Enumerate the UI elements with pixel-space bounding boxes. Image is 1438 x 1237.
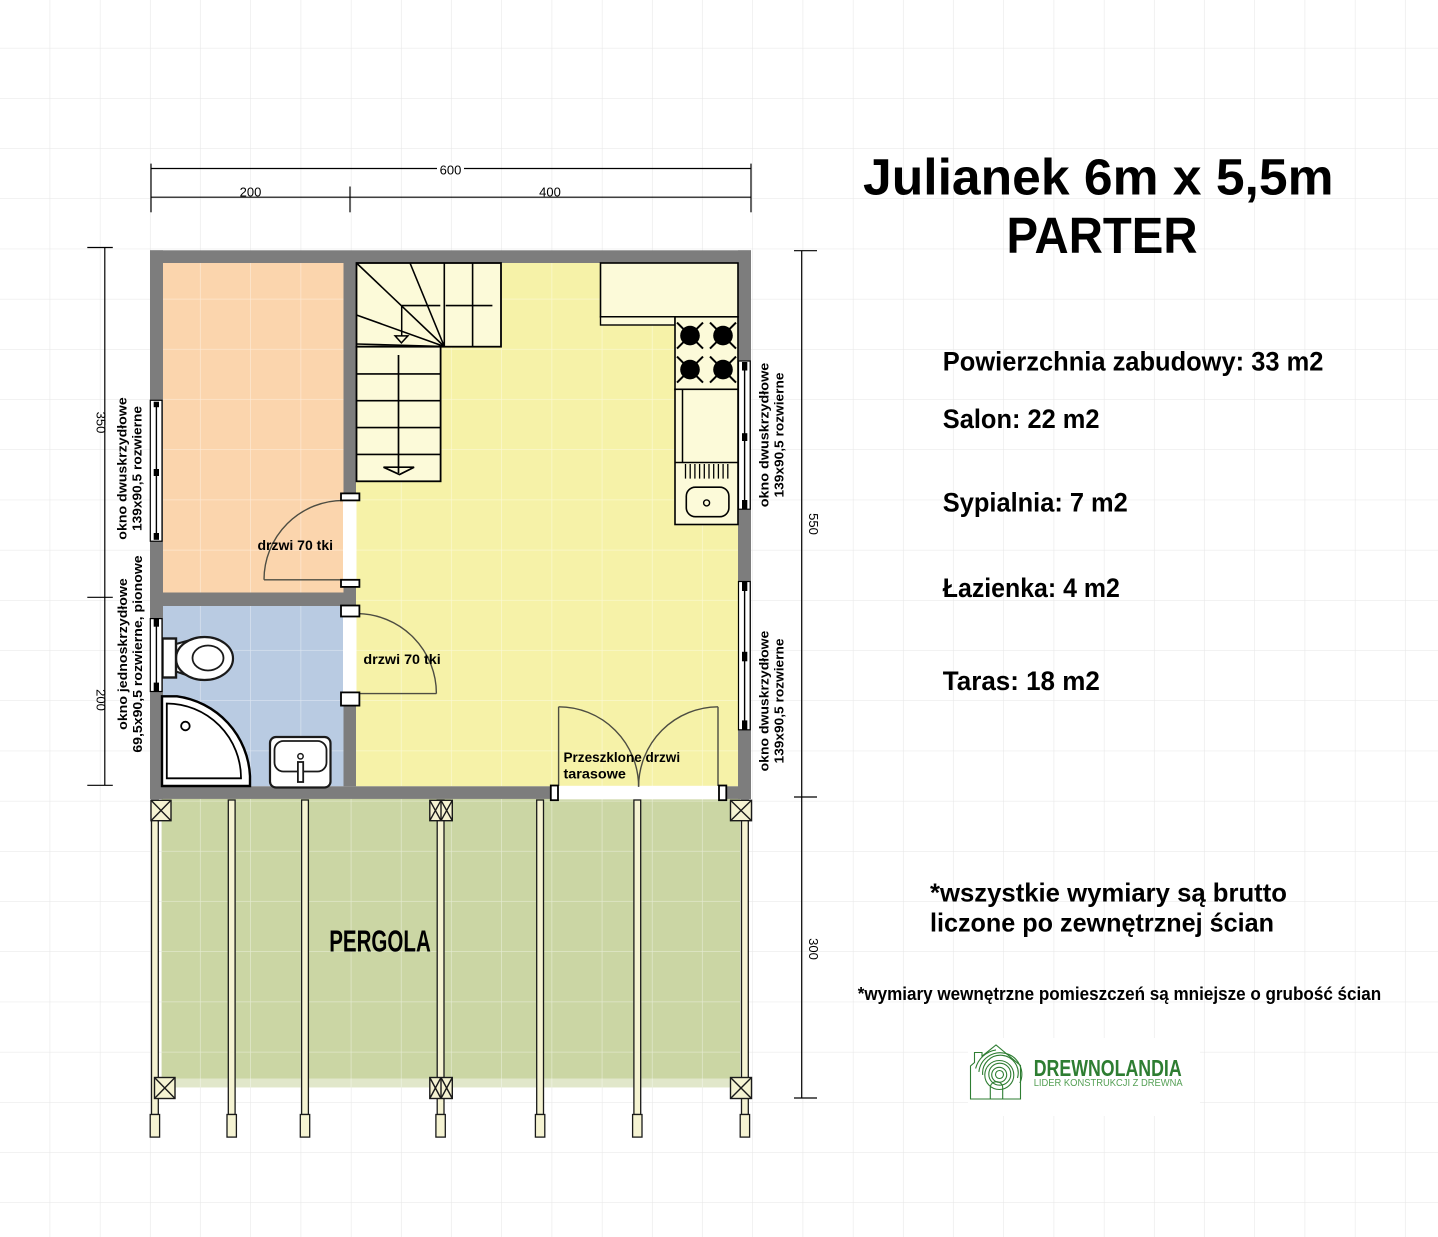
svg-text:300: 300 <box>806 938 821 960</box>
svg-text:*wszystkie wymiary są brutto: *wszystkie wymiary są brutto <box>930 878 1287 908</box>
svg-text:Łazienka: 4 m2: Łazienka: 4 m2 <box>943 573 1120 603</box>
svg-text:okno dwuskrzydłowe: okno dwuskrzydłowe <box>757 631 772 772</box>
svg-text:Salon: 22 m2: Salon: 22 m2 <box>943 404 1100 434</box>
svg-text:liczone po zewnętrznej ścian: liczone po zewnętrznej ścian <box>930 908 1274 938</box>
svg-text:LIDER KONSTRUKCJI Z DREWNA: LIDER KONSTRUKCJI Z DREWNA <box>1034 1077 1183 1089</box>
svg-text:350: 350 <box>94 412 109 434</box>
svg-text:Przeszklone drzwi: Przeszklone drzwi <box>564 750 681 765</box>
svg-text:Sypialnia: 7 m2: Sypialnia: 7 m2 <box>943 488 1128 518</box>
svg-text:okno dwuskrzydłowe: okno dwuskrzydłowe <box>115 397 130 539</box>
svg-text:Julianek 6m x 5,5m: Julianek 6m x 5,5m <box>863 149 1334 206</box>
svg-text:drzwi 70 tki: drzwi 70 tki <box>363 652 440 667</box>
svg-text:Powierzchnia zabudowy: 33 m2: Powierzchnia zabudowy: 33 m2 <box>943 347 1324 377</box>
svg-text:Taras: 18 m2: Taras: 18 m2 <box>943 666 1100 696</box>
svg-text:139x90,5 rozwierne: 139x90,5 rozwierne <box>772 373 787 498</box>
svg-text:PARTER: PARTER <box>1007 207 1198 264</box>
svg-text:*wymiary wewnętrzne pomieszcze: *wymiary wewnętrzne pomieszczeń są mniej… <box>858 984 1381 1004</box>
svg-text:400: 400 <box>539 185 561 200</box>
svg-text:550: 550 <box>806 513 821 535</box>
svg-text:PERGOLA: PERGOLA <box>329 924 431 959</box>
svg-text:okno jednoskrzydłowe: okno jednoskrzydłowe <box>115 578 130 730</box>
svg-text:139x90,5 rozwierne: 139x90,5 rozwierne <box>130 406 145 531</box>
svg-text:okno dwuskrzydłowe: okno dwuskrzydłowe <box>757 363 772 508</box>
svg-text:600: 600 <box>440 163 462 178</box>
svg-text:139x90,5 rozwierne: 139x90,5 rozwierne <box>772 639 787 764</box>
svg-text:200: 200 <box>240 185 262 200</box>
svg-text:drzwi 70 tki: drzwi 70 tki <box>258 538 334 553</box>
svg-text:200: 200 <box>94 689 109 711</box>
svg-text:69,5x90,5 rozwierne, pionowe: 69,5x90,5 rozwierne, pionowe <box>130 555 145 752</box>
svg-text:tarasowe: tarasowe <box>564 767 627 782</box>
